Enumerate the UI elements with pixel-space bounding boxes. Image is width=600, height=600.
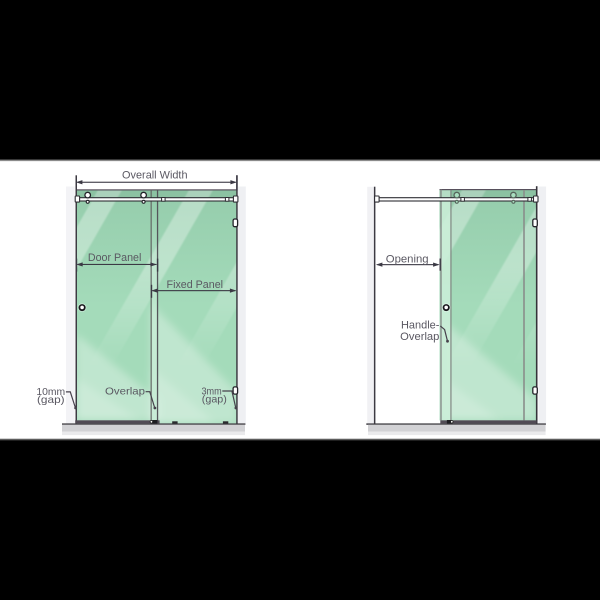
svg-text:Handle-: Handle-	[401, 319, 440, 331]
svg-text:Fixed Panel: Fixed Panel	[167, 279, 224, 291]
svg-text:Overlap: Overlap	[105, 387, 145, 398]
svg-text:(gap): (gap)	[202, 395, 227, 406]
svg-text:Opening: Opening	[386, 254, 429, 266]
svg-text:(gap): (gap)	[37, 395, 65, 406]
svg-text:Overlap: Overlap	[400, 331, 439, 343]
svg-text:Door Panel: Door Panel	[88, 252, 142, 264]
svg-text:Overall Width: Overall Width	[122, 169, 188, 181]
